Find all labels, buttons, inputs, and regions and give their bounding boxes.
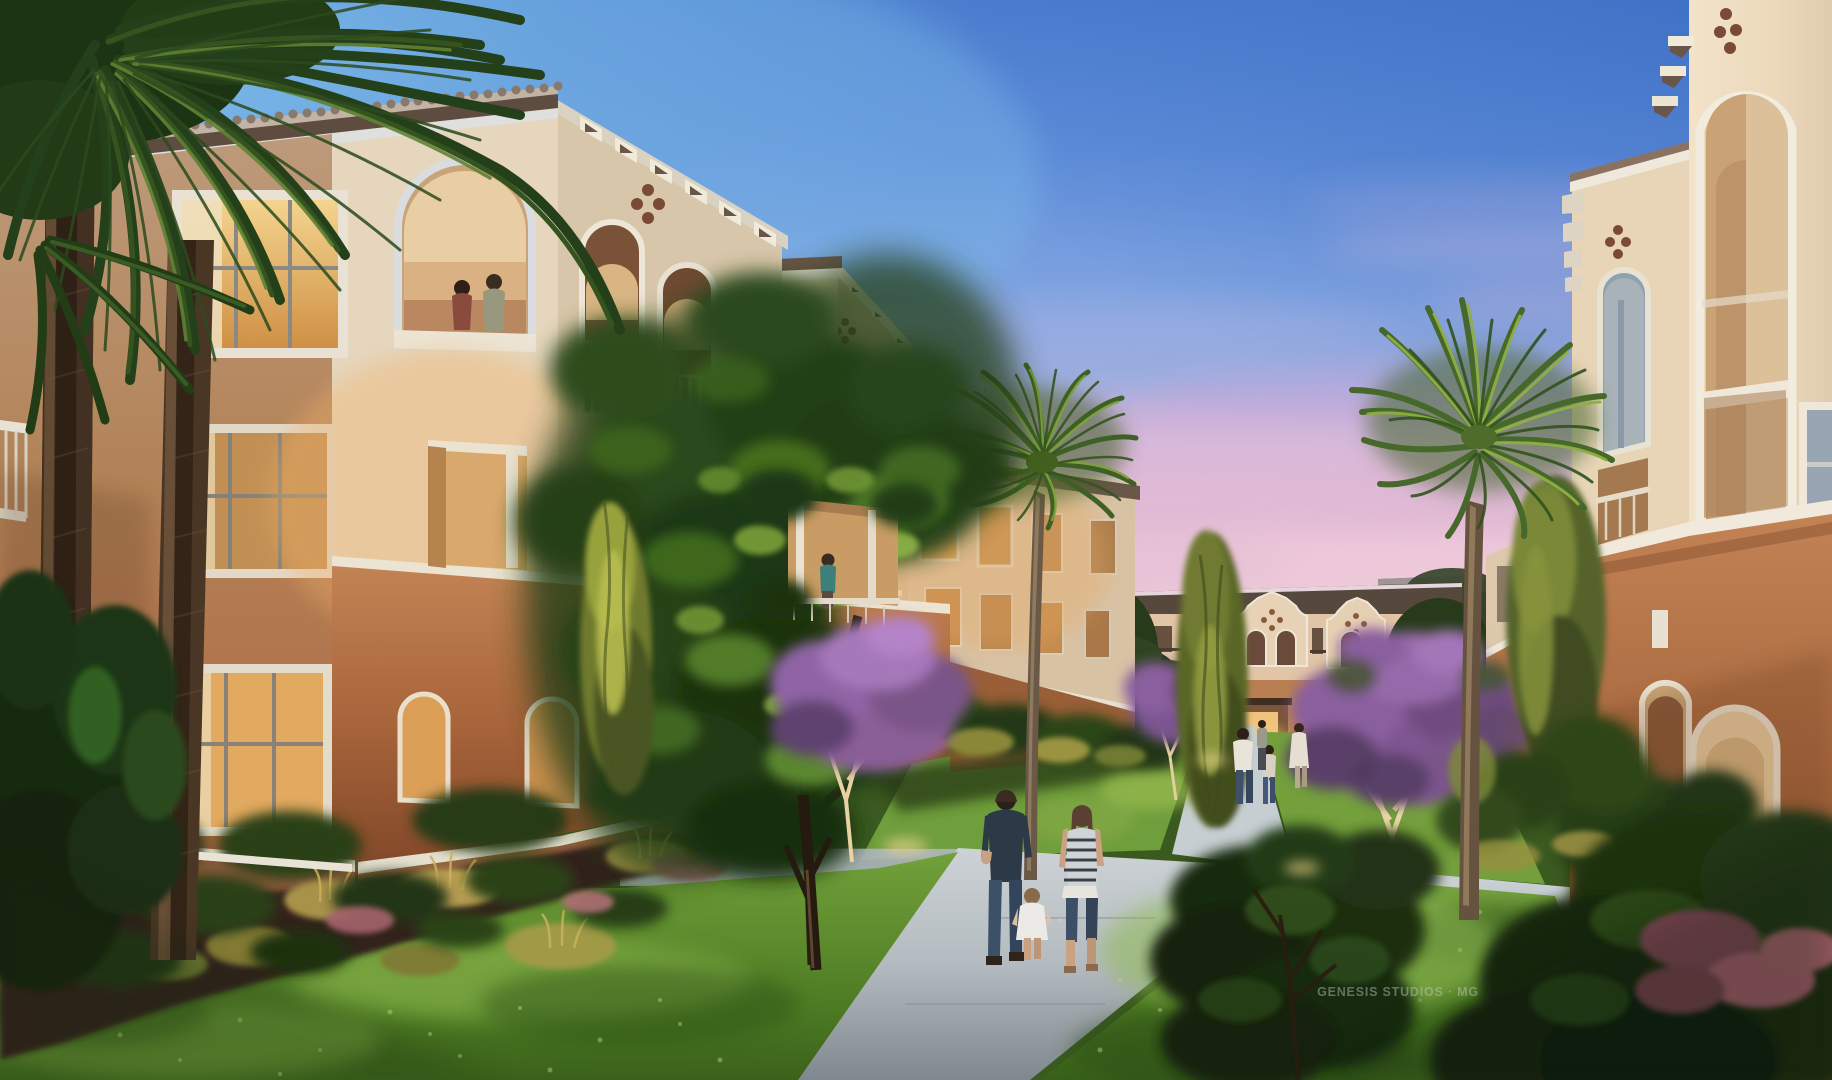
svg-text:GENESIS STUDIOS · MG: GENESIS STUDIOS · MG <box>1317 985 1479 999</box>
